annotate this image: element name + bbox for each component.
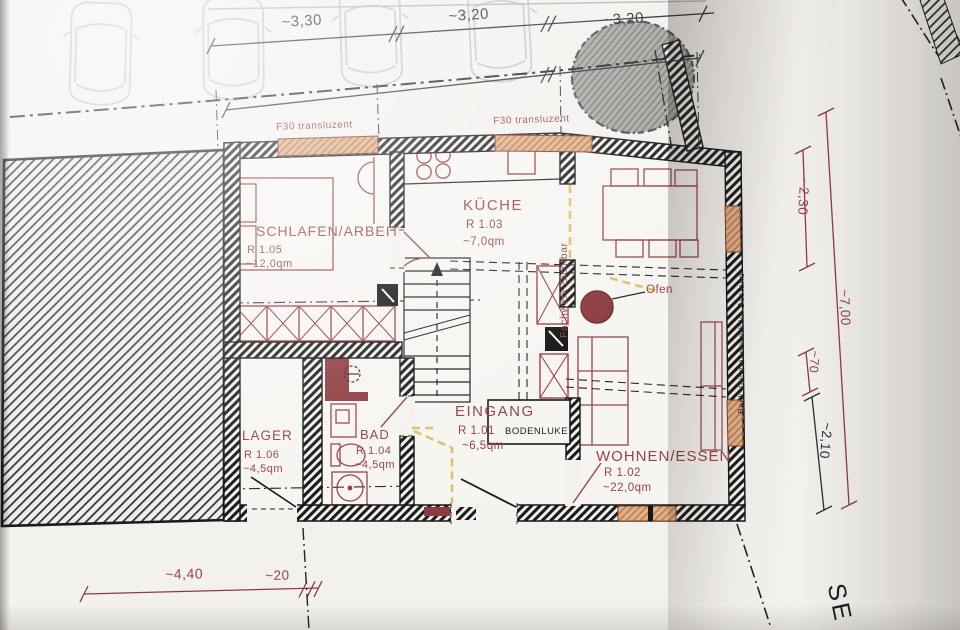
annotation-ofen: Ofen [646,284,673,296]
dim-label-right-3: ~70 [806,350,822,374]
room-label-eingang-number: R 1.01 [458,425,495,437]
room-label-bad-name: BAD [360,427,390,442]
dim-label-right-1: ~2,30 [795,178,812,215]
dim-label-top-1: ~3,30 [281,12,322,31]
room-label-kueche-area: ~7,0qm [463,236,505,248]
annotation-fachwerk: Fachwerk Sichtbar [558,243,570,338]
room-label-eingang-name: EINGANG [455,403,535,420]
street-name-partial: SE [821,581,858,626]
room-label-bad-number: R 1.04 [356,445,391,457]
room-label-lager-name: LAGER [242,428,293,443]
dim-label-top-2: ~3,20 [448,6,489,25]
dim-label-top-3: ~3,20 [603,10,644,29]
room-label-schlafen-number: R 1.05 [247,244,282,256]
dim-label-right-4: ~2,10 [817,422,835,460]
dim-label-right-2: ~7,00 [837,289,853,326]
floor-plan-photo: ~3,30 ~3,20 ~3,20 F30 transluzent F30 tr… [0,0,960,630]
room-label-lager-area: ~4,5qm [243,463,283,475]
room-label-bad-area: ~4,5qm [355,459,395,471]
plan-labels: ~3,30 ~3,20 ~3,20 F30 transluzent F30 tr… [0,0,960,630]
room-label-eingang-area: ~6,5qm [462,440,504,452]
room-label-kueche-number: R 1.03 [466,219,503,231]
dim-label-bottom-2: ~20 [265,568,290,583]
room-label-wohnen-number: R 1.02 [604,467,641,479]
room-label-lager-number: R 1.06 [244,449,279,461]
room-label-kueche-name: KÜCHE [463,197,523,214]
window-label-f30-right: F30 transluzent [493,113,570,127]
annotation-backstein: Backsteinmauerwerk im Bestand [736,273,746,414]
room-label-wohnen-area: ~22,0qm [603,482,652,494]
dim-label-bottom-1: ~4,40 [165,565,203,582]
room-label-schlafen-area: ~12,0qm [246,258,293,270]
window-label-f30-left: F30 transluzent [276,119,353,133]
room-label-schlafen-name: SCHLAFEN/ARBEIT [256,223,400,239]
annotation-bodenluke: BODENLUKE [505,426,568,437]
room-label-wohnen-name: WOHNEN/ESSEN [596,448,731,465]
